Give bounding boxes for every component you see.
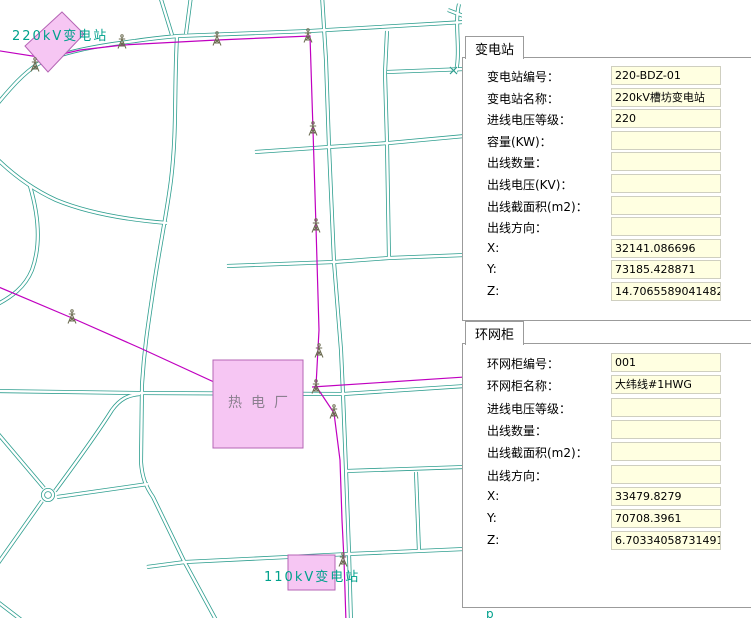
ring-cabinet-field-input-1[interactable]: 大纬线#1HWG [611, 375, 721, 394]
tower-icon[interactable] [330, 405, 338, 419]
substation-field-label-3: 容量(KW)： [487, 133, 552, 150]
map-drawing [0, 0, 462, 618]
ring-cabinet-field-input-8[interactable]: 6.70334058731491 [611, 531, 721, 550]
ring-cabinet-field-input-6[interactable]: 33479.8279 [611, 487, 721, 506]
substation-row-7: 出线方向： [463, 217, 751, 237]
substation-row-10: Z:14.70655890414820 [463, 282, 751, 302]
ring-cabinet-field-label-7: Y: [487, 511, 497, 525]
label-220kv-substation: 220kV变电站 [12, 25, 108, 44]
substation-row-1: 变电站名称：220kV槽坊变电站 [463, 88, 751, 108]
substation-row-0: 变电站编号：220-BDZ-01 [463, 66, 751, 86]
substation-field-label-9: Y: [487, 262, 497, 276]
substation-field-input-10[interactable]: 14.70655890414820 [611, 282, 721, 301]
substation-field-input-5[interactable] [611, 174, 721, 193]
road-network [0, 0, 462, 618]
substation-field-label-0: 变电站编号： [487, 68, 559, 85]
tab-ring-cabinet[interactable]: 环网柜 [465, 321, 524, 345]
substation-field-label-5: 出线电压(KV)： [487, 176, 572, 193]
ring-cabinet-field-input-7[interactable]: 70708.3961 [611, 509, 721, 528]
substation-field-label-2: 进线电压等级： [487, 111, 571, 128]
ring-cabinet-field-input-4[interactable] [611, 442, 721, 461]
substation-field-label-8: X: [487, 241, 499, 255]
ring-cabinet-field-label-6: X: [487, 489, 499, 503]
substation-field-input-7[interactable] [611, 217, 721, 236]
substation-field-input-8[interactable]: 32141.086696 [611, 239, 721, 258]
tab-ring-cabinet-label: 环网柜 [475, 328, 514, 343]
label-thermal-plant: 热电厂 [228, 392, 297, 412]
ring-cabinet-row-7: Y:70708.3961 [463, 509, 751, 529]
substation-row-8: X:32141.086696 [463, 239, 751, 259]
substation-field-label-4: 出线数量： [487, 154, 547, 171]
substation-row-3: 容量(KW)： [463, 131, 751, 151]
ring-cabinet-row-8: Z:6.70334058731491 [463, 531, 751, 551]
power-lines [0, 36, 462, 618]
substation-row-6: 出线截面积(m2)： [463, 196, 751, 216]
substation-row-5: 出线电压(KV)： [463, 174, 751, 194]
substation-field-label-10: Z: [487, 284, 499, 298]
detail-panel: 变电站 变电站编号：220-BDZ-01变电站名称：220kV槽坊变电站进线电压… [462, 0, 751, 618]
ring-cabinet-field-input-3[interactable] [611, 420, 721, 439]
ring-cabinet-field-label-1: 环网柜名称： [487, 377, 559, 394]
ring-cabinet-field-label-0: 环网柜编号： [487, 355, 559, 372]
transmission-towers [31, 29, 347, 567]
stray-glyph: p [486, 607, 494, 618]
ring-cabinet-field-label-5: 出线方向： [487, 467, 547, 484]
substation-field-input-9[interactable]: 73185.428871 [611, 260, 721, 279]
ring-cabinet-row-6: X:33479.8279 [463, 487, 751, 507]
ring-cabinet-row-5: 出线方向： [463, 465, 751, 485]
substation-field-input-6[interactable] [611, 196, 721, 215]
tab-substation-label: 变电站 [475, 43, 514, 58]
substation-field-input-0[interactable]: 220-BDZ-01 [611, 66, 721, 85]
substation-field-label-1: 变电站名称： [487, 90, 559, 107]
tower-icon[interactable] [315, 344, 323, 358]
tab-substation[interactable]: 变电站 [465, 36, 524, 59]
map-areas [25, 12, 335, 590]
substation-row-9: Y:73185.428871 [463, 260, 751, 280]
map-canvas[interactable]: 220kV变电站 热电厂 110kV变电站 [0, 0, 462, 618]
gis-app-window: 220kV变电站 热电厂 110kV变电站 变电站 变电站编号：220-BDZ-… [0, 0, 751, 618]
substation-field-label-7: 出线方向： [487, 219, 547, 236]
substation-field-input-1[interactable]: 220kV槽坊变电站 [611, 88, 721, 107]
ring-cabinet-field-input-0[interactable]: 001 [611, 353, 721, 372]
substation-field-input-2[interactable]: 220 [611, 109, 721, 128]
substation-field-label-6: 出线截面积(m2)： [487, 198, 588, 215]
ring-cabinet-row-1: 环网柜名称：大纬线#1HWG [463, 375, 751, 395]
ring-cabinet-field-label-8: Z: [487, 533, 499, 547]
substation-row-2: 进线电压等级：220 [463, 109, 751, 129]
ring-cabinet-row-2: 进线电压等级： [463, 398, 751, 418]
ring-cabinet-field-label-4: 出线截面积(m2)： [487, 444, 588, 461]
ring-cabinet-field-label-3: 出线数量： [487, 422, 547, 439]
substation-row-4: 出线数量： [463, 152, 751, 172]
ring-cabinet-field-input-2[interactable] [611, 398, 721, 417]
ring-cabinet-pane: 环网柜编号：001环网柜名称：大纬线#1HWG进线电压等级：出线数量：出线截面积… [462, 343, 751, 608]
substation-field-input-4[interactable] [611, 152, 721, 171]
ring-cabinet-row-4: 出线截面积(m2)： [463, 442, 751, 462]
substation-pane: 变电站编号：220-BDZ-01变电站名称：220kV槽坊变电站进线电压等级：2… [462, 57, 751, 321]
ring-cabinet-row-0: 环网柜编号：001 [463, 353, 751, 373]
ring-cabinet-field-input-5[interactable] [611, 465, 721, 484]
ring-cabinet-row-3: 出线数量： [463, 420, 751, 440]
label-110kv-substation: 110kV变电站 [264, 566, 360, 585]
ring-cabinet-field-label-2: 进线电压等级： [487, 400, 571, 417]
substation-field-input-3[interactable] [611, 131, 721, 150]
